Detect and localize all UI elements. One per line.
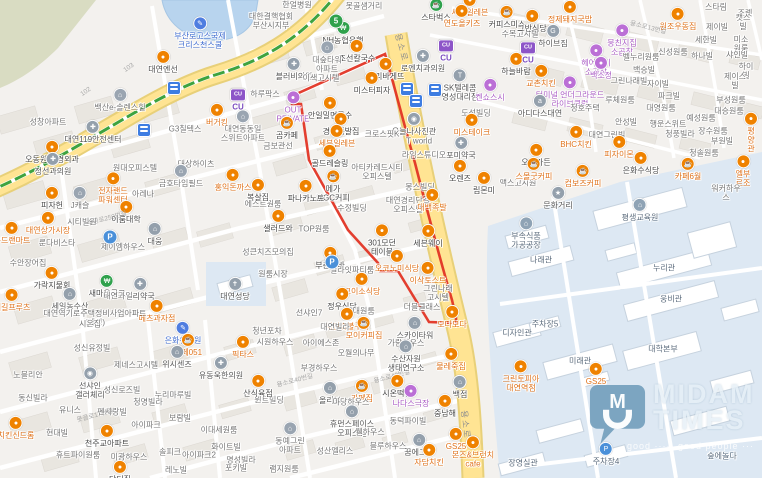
map-label-text: 대연성당 — [220, 292, 249, 301]
map-label: 레노빌 — [165, 465, 187, 474]
map-label[interactable]: ●이삭토스트 — [410, 261, 447, 285]
map-label: 부성원룸 — [716, 95, 745, 104]
map-label-text: 동예그린 아파트 — [275, 436, 304, 454]
map-label[interactable]: ●엘부르조 — [734, 154, 753, 187]
map-label[interactable]: ●정제돼지국밥 — [548, 0, 592, 24]
map-label: 못골샘거리 — [346, 1, 383, 10]
map-label-text: 선샤인7 — [296, 308, 323, 317]
map-label-text: 대연과일 — [103, 291, 132, 300]
franchise-icon: ● — [390, 249, 404, 263]
franchise-icon: ● — [236, 335, 250, 349]
map-label-text: 부원빌 — [711, 136, 733, 145]
poi-icon: ● — [350, 39, 364, 53]
place-icon: ⌂ — [399, 339, 413, 353]
map-label: ⌂대숲타워 아파트 — [312, 40, 341, 73]
map-label-text: 모이커피집 — [346, 331, 383, 340]
poi-icon: ● — [477, 171, 491, 185]
map-label-text: 스몰굿커피 — [516, 172, 553, 181]
map-label[interactable]: ●켄쇼스시 — [475, 78, 504, 102]
map-label-text: 나래관 — [530, 255, 552, 264]
map-label-text: 이대세원룸 — [201, 425, 238, 434]
place-icon: ⌂ — [408, 316, 422, 330]
map-label: 대승원룸 — [714, 106, 743, 115]
map-label-text: 보람빌 — [169, 413, 191, 422]
map-label-text: 루체원룸 — [605, 95, 634, 104]
map-label[interactable]: ●천주교아파트 — [85, 424, 129, 448]
place-icon: ★ — [551, 186, 565, 200]
poi-icon: ☕ — [500, 5, 514, 19]
map-label-text: J캐슬 — [71, 201, 90, 210]
map-label-text: 샐러드와 — [263, 224, 292, 233]
map-label: ⌂백산e-솔렌스힐 — [94, 88, 145, 112]
poi-icon: ● — [251, 178, 265, 192]
school-icon: ✎ — [193, 16, 207, 30]
map-label-text: 룬다비스타 — [39, 238, 76, 247]
map-label-text: 나다스극장 — [393, 399, 430, 408]
map-label-text: GS25 — [586, 377, 606, 386]
poi-icon: ☕ — [326, 169, 340, 183]
campus-building-icon: ⌂ — [519, 216, 533, 230]
poi-icon: ● — [100, 424, 114, 438]
map-label[interactable]: ●대백족발 — [417, 188, 446, 212]
map-label-text: 성산엘리스 — [317, 446, 354, 455]
map-label[interactable]: ☕컵보즈커피 — [565, 164, 602, 188]
map-label: 금보관선 — [263, 141, 292, 150]
map-label-text: 세한빌 — [695, 35, 717, 44]
map-label[interactable]: ✎부산로고스국제 크리스천스쿨 — [174, 16, 226, 49]
poi-icon: ● — [375, 223, 389, 237]
poi-icon: ● — [365, 71, 379, 85]
map-label-text: 스타림 — [705, 2, 727, 11]
map-label[interactable]: ⌂스카이타워 — [397, 316, 434, 340]
map-label: 웰하우스 — [355, 427, 384, 436]
map-label-text: TOP원룸 — [298, 224, 329, 233]
map-label-text: 자담치킨 — [414, 458, 443, 467]
parking-icon: P — [599, 442, 613, 456]
map-label-text: 평생교육원 — [622, 213, 659, 222]
map-label-text: 부경하우스 — [301, 363, 338, 372]
franchise-icon: ● — [355, 272, 369, 286]
place-icon: G — [546, 24, 560, 38]
map-label: 웅비관 — [660, 294, 682, 303]
map-label-text: 현대빌 — [46, 428, 68, 437]
map-label-text: 정제돼지국밥 — [548, 15, 592, 24]
map-label: 제이스빌 — [722, 72, 749, 90]
map-label-text: 노블리안 — [13, 370, 42, 379]
map-label-text: 백승빌 — [633, 65, 655, 74]
franchise-icon: ● — [106, 171, 120, 185]
franchise-icon: ● — [612, 135, 626, 149]
map-label: 시온집 — [79, 319, 101, 328]
map-label-text: 동덕파이빌 — [390, 416, 427, 425]
map-label[interactable]: ●세븐웨이 — [413, 224, 442, 248]
map-label-text: 청년포차 — [252, 326, 281, 335]
map-label[interactable]: TSK텔레콤 영성대리점 — [442, 68, 479, 101]
map-label: 청풍빌라 — [665, 129, 694, 138]
map-label-text: 정선과의원 — [35, 167, 72, 176]
franchise-icon: ● — [444, 347, 458, 361]
map-label[interactable]: ●평양관 — [744, 112, 758, 155]
poi-icon: ● — [453, 159, 467, 173]
map-label[interactable]: ●나다스극장 — [393, 384, 430, 408]
map-label[interactable]: P주차장4 — [593, 442, 620, 466]
map-label: 대한결핵협회 부산시지부 — [249, 12, 293, 30]
map-label: 아티카레드시티 오피스텔 — [351, 163, 403, 181]
map-label-text: 시원하우스 — [257, 337, 294, 346]
map-label-text: 자이빌 — [647, 79, 669, 88]
bus-stop-icon[interactable] — [137, 123, 151, 137]
poi-icon: ● — [421, 224, 435, 238]
poi-icon: ● — [299, 179, 313, 193]
map-label[interactable]: ●BHC치킨 — [560, 125, 592, 149]
map-label[interactable]: ●대연상가시장 — [26, 211, 70, 235]
apartment-icon: ⌂ — [236, 109, 250, 123]
map-label-text: 그린나래 고시텔 — [423, 284, 452, 302]
map-label: 동덕파이빌 — [390, 416, 427, 425]
map-label[interactable]: ✝대연성당 — [220, 277, 249, 301]
poi-icon: ● — [634, 151, 648, 165]
map-label-text: 금호타임필드 — [159, 179, 203, 188]
map-label[interactable]: ☕카페6월 — [675, 157, 702, 181]
map-label[interactable]: ●샐러드와 — [263, 209, 292, 233]
map-label[interactable]: a아디다스대연 — [518, 94, 562, 118]
map-label[interactable]: ✚정선과의원 — [35, 152, 72, 176]
map-label[interactable]: ●크린토피아 대연역점 — [503, 359, 540, 392]
map-label: 신성원룸 — [658, 47, 687, 56]
franchise-icon: ● — [150, 299, 164, 313]
map-label[interactable]: ●단디집 — [109, 460, 131, 478]
map-label-text: 누리관 — [653, 263, 675, 272]
map-label[interactable]: ☕모이커피집 — [346, 316, 383, 340]
place-icon: ⌂ — [63, 287, 77, 301]
map-label-text: 대승원룸 — [714, 106, 743, 115]
map-label-text: 평양관 — [744, 127, 758, 155]
map-label-text: 휴트파이원룸 — [56, 450, 100, 459]
map-label[interactable]: ✚포미약국 — [446, 136, 475, 160]
map-label[interactable]: ●립몬미 — [473, 171, 495, 195]
map-label: 못골로17번길 — [76, 408, 114, 425]
map-label-text: 원룸시장 — [258, 269, 287, 278]
map-label[interactable]: ●자담치킨 — [414, 443, 443, 467]
map-label[interactable]: CUCU — [520, 41, 536, 64]
map-label: 하루팍스 — [250, 89, 279, 98]
campus-building-icon: ⌂ — [633, 198, 647, 212]
franchise-icon: ☕ — [355, 379, 369, 393]
map-label-text: 부속식품 가공공장 — [511, 231, 540, 249]
map-label: 대영원룸 — [646, 103, 675, 112]
map-label-text: 크린토피아 대연역점 — [503, 374, 540, 392]
map-label-text: 이삭토스트 — [410, 276, 447, 285]
map-label-text: 곰카페 — [276, 131, 298, 140]
poi-icon: ● — [156, 50, 170, 64]
map-label-text: 대연상가시장 — [26, 226, 70, 235]
map-label-text: 용소로40번길 — [276, 373, 314, 390]
map-label-text: 하나빌 — [691, 51, 713, 60]
parking-icon: P — [103, 230, 118, 245]
franchise-icon: ● — [465, 113, 479, 127]
map-label-text: G3칠텍스 — [169, 124, 202, 133]
map-label-text: 오월의나무 — [338, 348, 375, 357]
map-label-text: 아이파크 — [131, 420, 160, 429]
map-label-text: 샤인빌 — [726, 50, 748, 59]
franchise-icon: ● — [449, 427, 463, 441]
map-label: 나래관 — [530, 255, 552, 264]
place-icon: T — [453, 68, 467, 82]
map-label[interactable]: ●우드랜마트 — [0, 221, 30, 245]
map-label-text: 문화거리 — [543, 201, 572, 210]
bus-stop-icon[interactable] — [167, 81, 181, 95]
map-label[interactable]: G하이브짐 — [538, 24, 567, 48]
map-label[interactable]: ●골드레슬링 — [312, 144, 349, 168]
map-label: 그린나래 고시텔 — [423, 284, 452, 302]
map-label: 제이빌 — [706, 22, 728, 31]
apartment-icon: ⌂ — [283, 421, 297, 435]
map-label[interactable]: ⌂세일농수산 — [52, 287, 89, 311]
map-label-text: 아레나 — [132, 189, 154, 198]
map-label: 블루하우스 — [370, 441, 407, 450]
franchise-icon: ● — [744, 112, 758, 126]
map-label-text: 아이파크2 — [182, 450, 216, 459]
place-icon: ✝ — [228, 277, 242, 291]
poi-icon: ● — [323, 96, 337, 110]
map-label: 청년포차 — [252, 326, 281, 335]
map-label: 노블리안 — [13, 370, 42, 379]
map-label: 부경하우스 — [301, 363, 338, 372]
map-label-text: 웅비관 — [660, 294, 682, 303]
map-label: 워커하우스 — [708, 184, 744, 202]
map-label[interactable]: ●피자헌 — [41, 186, 63, 210]
franchise-icon: ☕ — [576, 164, 590, 178]
venue-icon: ● — [286, 90, 300, 104]
franchise-icon: ● — [445, 305, 459, 319]
venue-icon: ● — [615, 23, 629, 37]
map-label-text: 중남해 — [434, 409, 456, 418]
franchise-icon: ● — [736, 154, 750, 168]
franchise-icon: ● — [589, 362, 603, 376]
map-label: 동신빌라 — [18, 393, 47, 402]
map-label: 수정빌딩 — [337, 203, 366, 212]
map-label-text: 유니스 — [59, 405, 81, 414]
map-label[interactable]: ⌂평생교육원 — [622, 198, 659, 222]
franchise-icon: ● — [569, 125, 583, 139]
map-label-text: 주차장5 — [532, 319, 559, 328]
map-label[interactable]: ●미스테이크 — [454, 113, 491, 137]
map-label[interactable]: ●물레죽집 — [436, 347, 465, 371]
bank-icon: ☕ — [429, 0, 443, 12]
map-label-text: 청풍빌라 — [665, 129, 694, 138]
map-label-text: 예성원룸 — [686, 113, 715, 122]
map-label-text: 레노빌 — [165, 465, 187, 474]
map-label: 한얼병원 — [282, 0, 311, 9]
place-icon: ⌂ — [345, 404, 359, 418]
map-label: 하나빌 — [691, 51, 713, 60]
franchise-icon: ● — [5, 221, 19, 235]
map-label: 오월의나무 — [338, 348, 375, 357]
map-label[interactable]: ◉선샤인 갤러체리 — [75, 366, 104, 399]
map-label: 자이빌 — [647, 79, 669, 88]
hospital-icon: ✚ — [46, 152, 60, 166]
map-label-text: 102 — [79, 86, 92, 98]
franchise-icon: ● — [466, 435, 480, 449]
map-label: 이대세원룸 — [201, 425, 238, 434]
bus-stop-icon[interactable] — [409, 94, 423, 108]
map-label-text: 성창아파트 — [30, 117, 67, 126]
map-label[interactable]: ●GS25 — [586, 362, 606, 386]
map-label: 아레나 — [132, 189, 154, 198]
place-icon: ⌂ — [170, 345, 184, 359]
franchise-icon: ● — [425, 188, 439, 202]
map-label-text: 골드레슬링 — [312, 159, 349, 168]
place-icon: ◉ — [407, 112, 421, 126]
map-label: 보람빌 — [169, 413, 191, 422]
franchise-icon: ● — [330, 124, 344, 138]
map-label[interactable]: ●파나카노트 — [288, 179, 325, 203]
map-label-text: 이색고시텔 — [303, 73, 340, 82]
map-label-text: 대백족발 — [417, 203, 446, 212]
map-label: 솔피크 — [159, 447, 181, 456]
map-label: 용소로40번길 — [276, 373, 314, 390]
franchise-icon: ● — [421, 261, 435, 275]
map-label-text: 수정빌딩 — [337, 203, 366, 212]
subway-exit-badge[interactable]: 5 — [329, 14, 344, 29]
venue-icon: ● — [563, 75, 577, 89]
map-label-text: 유동욱한의원 — [199, 371, 243, 380]
map-label-text: 치킨신드롬 — [0, 431, 34, 440]
parking-icon: P — [325, 255, 340, 270]
franchise-icon: ● — [514, 359, 528, 373]
map-label: 라임스튜디오 — [402, 150, 446, 159]
map-label[interactable]: ⌂수산자원 생태연구소 — [388, 339, 425, 372]
map-label: 이색고시텔 — [303, 73, 340, 82]
map-label-text: 라임스튜디오 — [402, 150, 446, 159]
map-label[interactable]: ●은화수식당 — [623, 151, 660, 175]
venue-icon: ● — [404, 384, 418, 398]
map-label: 디자인관 — [502, 328, 531, 337]
map-label: 백승빌 — [633, 65, 655, 74]
map-label[interactable]: ●모다모다 — [437, 305, 466, 329]
map-viewport[interactable]: ✎부산로고스국제 크리스천스쿨●대연엔선⌂백산e-솔렌스힐성창아파트✚대연119… — [0, 0, 762, 478]
map-label: 대학본부 — [648, 344, 677, 353]
map-label-text: 주차장4 — [593, 457, 620, 466]
map-label-text: 한얼병원 — [282, 0, 311, 9]
poi-icon: ● — [113, 460, 127, 474]
map-label[interactable]: ⌂부속식품 가공공장 — [511, 216, 540, 249]
map-label[interactable]: ●새길프루츠 — [0, 288, 30, 312]
map-label-text: 장수원룸 — [698, 126, 727, 135]
map-label[interactable]: ●대연엔선 — [148, 50, 177, 74]
map-label: ⌂대연동동일 스위트아파트 — [221, 109, 265, 142]
map-label-text: 더블클래스 — [404, 302, 441, 311]
map-label: 청호주택 — [570, 103, 599, 112]
map-label: 장영실관 — [508, 458, 537, 467]
map-label: 103 — [122, 62, 135, 74]
map-label[interactable]: ●산식육점 — [243, 374, 272, 398]
map-label-text: 선샤인 갤러체리 — [75, 381, 104, 399]
place-icon: ◉ — [83, 366, 97, 380]
map-label-text: 청호주택 — [570, 103, 599, 112]
map-label-text: 아티카레드시티 오피스텔 — [351, 163, 403, 181]
map-label-text: 수산자원 생태연구소 — [388, 354, 425, 372]
map-label[interactable]: ●중남해 — [434, 394, 456, 418]
map-label-text: 대영원룸 — [646, 103, 675, 112]
map-label: 룬다비스타 — [39, 238, 76, 247]
map-label: 크로스핏K — [365, 129, 400, 138]
poi-icon: ● — [45, 266, 59, 280]
map-label-text: 크로스핏K — [365, 129, 400, 138]
apartment-icon: ⌂ — [320, 40, 334, 54]
map-label-text: 파크빌 — [658, 91, 680, 100]
place-icon: ⌂ — [453, 375, 467, 389]
poi-icon: ● — [251, 374, 265, 388]
map-label[interactable]: ⌂대웅 — [148, 222, 163, 246]
map-label: 캣스빌 — [734, 13, 753, 31]
map-label: 시원하우스 — [257, 337, 294, 346]
poi-icon: ● — [335, 287, 349, 301]
bus-stop-icon[interactable] — [428, 83, 442, 97]
map-label: 누리관 — [653, 263, 675, 272]
map-label-text: 모다모다 — [437, 320, 466, 329]
place-icon: ✚ — [86, 120, 100, 134]
map-label-text: GS25 — [446, 442, 466, 451]
map-label: 아이파크 — [131, 420, 160, 429]
map-label-text: 캣스빌 — [734, 13, 753, 31]
map-label: 벨누리원룸 — [623, 52, 660, 61]
place-icon: ⌂ — [323, 381, 337, 395]
map-label[interactable]: ●오렌즈 — [449, 159, 471, 183]
map-label[interactable]: ●치킨신드롬 — [0, 416, 34, 440]
map-label-text: 제네스고시텔 — [114, 360, 158, 369]
map-label-text: 램지원룸 — [269, 464, 298, 473]
map-label[interactable]: ●연도올키즈 — [444, 4, 481, 28]
poi-icon: ● — [438, 394, 452, 408]
map-label-text: 몬즈&브런치 cafe — [452, 450, 494, 468]
map-label: 제네스고시텔 — [114, 360, 158, 369]
map-label-text: 웰하우스 — [355, 427, 384, 436]
map-label-text: 장영실관 — [508, 458, 537, 467]
map-label[interactable]: ★문화거리 — [543, 186, 572, 210]
map-label: 루체원룸 — [605, 95, 634, 104]
map-label-text: 아디다스대연 — [518, 109, 562, 118]
map-label-text: 세븐웨이 — [413, 239, 442, 248]
map-label: 더블클래스 — [404, 302, 441, 311]
map-label[interactable]: CUCU — [230, 88, 246, 111]
map-label: 포키빌 — [225, 463, 247, 472]
map-label: 행운스위트 — [650, 119, 687, 128]
map-label-text: 산식육점 — [243, 389, 272, 398]
poi-icon: ● — [45, 186, 59, 200]
cu-store-icon: CU — [230, 88, 246, 101]
map-label-text: 파나카노트 — [288, 194, 325, 203]
map-label[interactable]: ●GS25 — [446, 427, 466, 451]
map-label: 청명빌라 — [133, 397, 162, 406]
venue-icon: ● — [594, 56, 608, 70]
map-label: 현대빌 — [46, 428, 68, 437]
apartment-icon: ⌂ — [73, 186, 87, 200]
map-label[interactable]: ✚유동욱한의원 — [199, 356, 243, 380]
map-label[interactable]: ●미스터피자 — [354, 71, 391, 95]
map-label-text: 미스터피자 — [354, 86, 391, 95]
map-label[interactable]: ●홍익돈까스 — [215, 168, 252, 192]
map-label-text: 천주교아파트 — [85, 439, 129, 448]
poi-icon: ● — [525, 9, 539, 23]
map-label[interactable]: ☕스몰굿커피 — [516, 157, 553, 181]
map-label-text: 은화수식당 — [623, 166, 660, 175]
map-label-text: 하루팍스 — [250, 89, 279, 98]
map-label-text: 시온집 — [79, 319, 101, 328]
map-label[interactable]: ☕곰카페 — [276, 116, 298, 140]
map-label[interactable]: ●복살집 — [247, 178, 269, 202]
map-label[interactable]: ⌂위시센즈 — [162, 345, 191, 369]
